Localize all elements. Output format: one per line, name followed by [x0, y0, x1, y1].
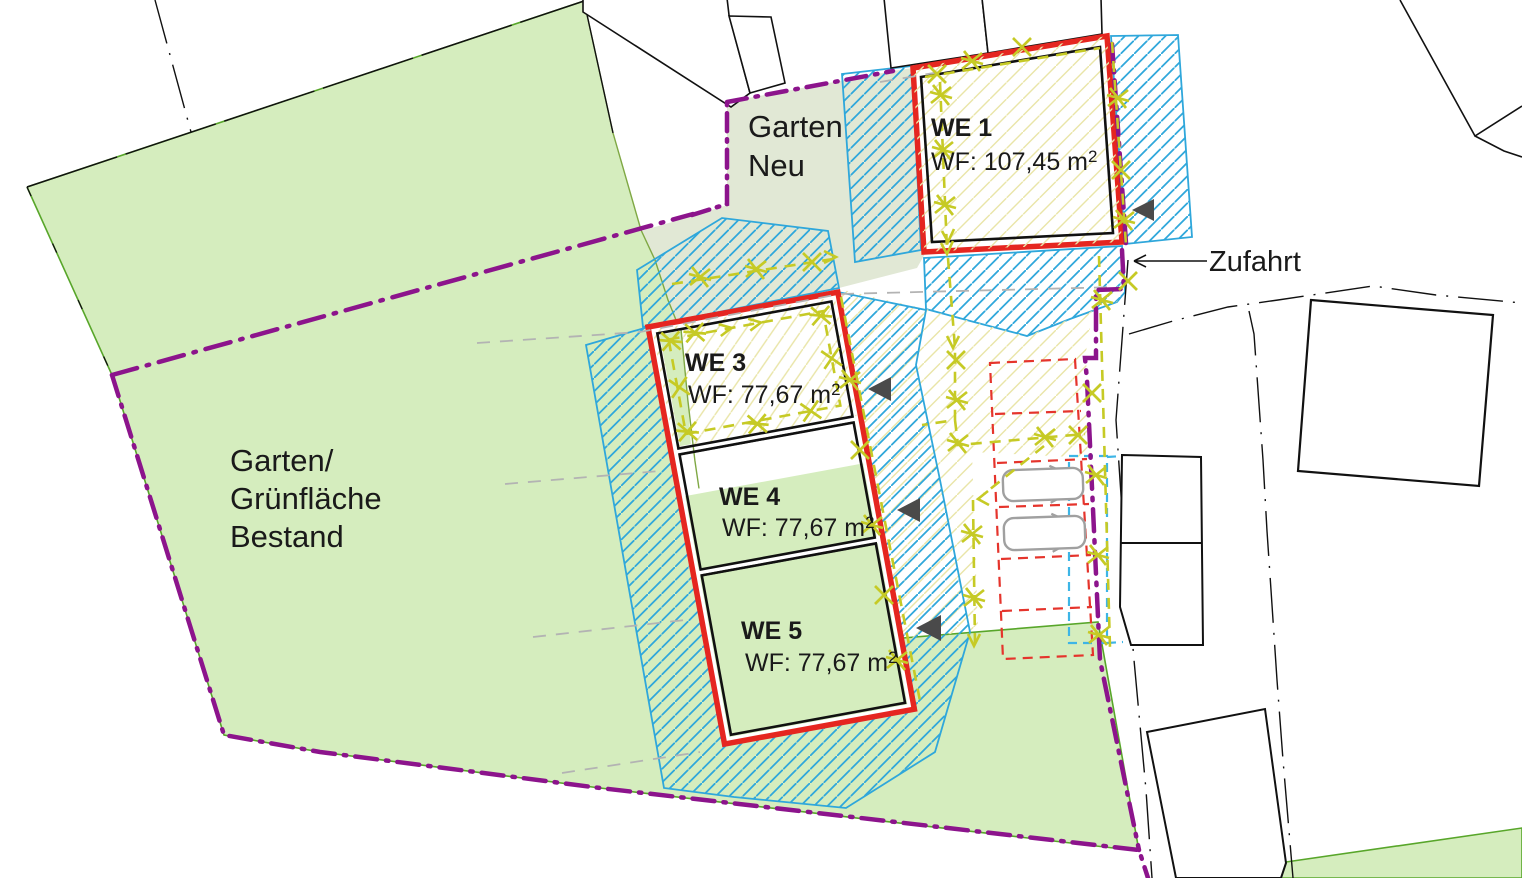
svg-text:WF: 77,67 m2: WF: 77,67 m2 — [722, 513, 875, 542]
svg-text:WE 4: WE 4 — [719, 483, 780, 511]
svg-text:WF: 77,67 m2: WF: 77,67 m2 — [745, 648, 898, 677]
svg-text:WE 3: WE 3 — [685, 349, 746, 377]
svg-text:WF: 77,67 m2: WF: 77,67 m2 — [688, 380, 841, 409]
svg-text:Neu: Neu — [748, 148, 805, 183]
svg-text:Zufahrt: Zufahrt — [1209, 246, 1301, 278]
svg-text:WE 5: WE 5 — [741, 617, 802, 645]
svg-text:Grünfläche: Grünfläche — [230, 481, 382, 516]
svg-text:Garten/: Garten/ — [230, 443, 334, 478]
svg-text:WE 1: WE 1 — [931, 114, 992, 142]
svg-text:WF: 107,45 m2: WF: 107,45 m2 — [931, 147, 1097, 176]
svg-text:Garten: Garten — [748, 109, 843, 144]
svg-text:Bestand: Bestand — [230, 519, 344, 554]
